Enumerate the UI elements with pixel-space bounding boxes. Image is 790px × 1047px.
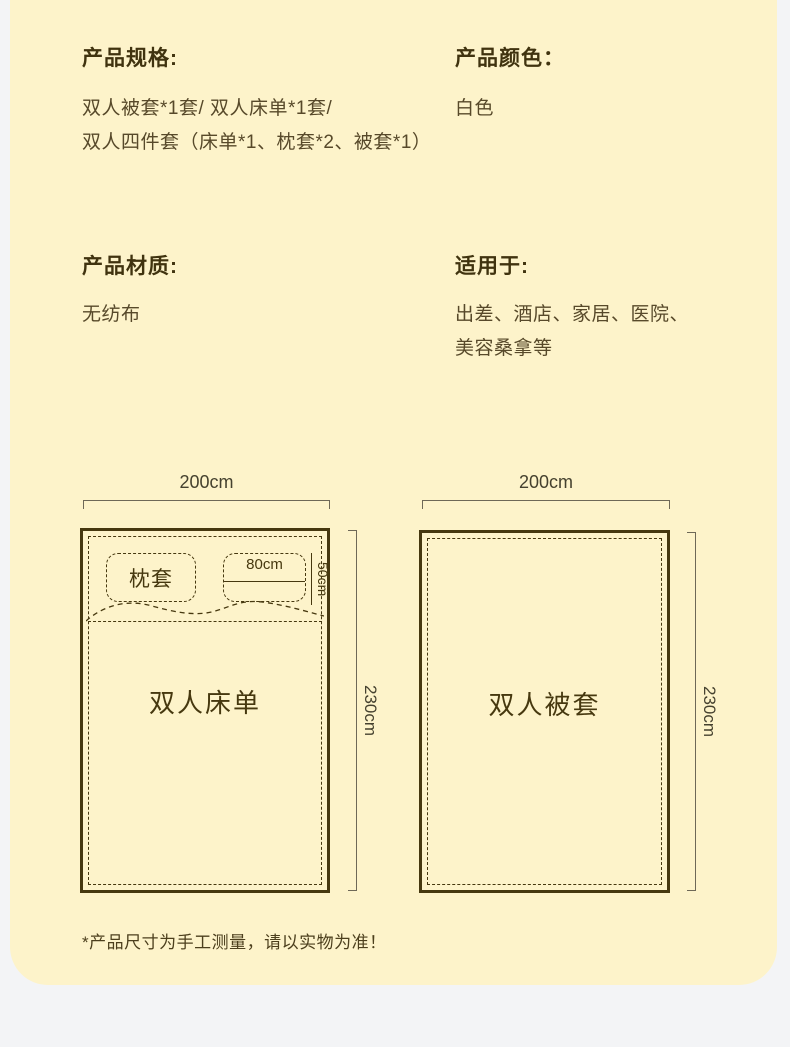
sheet-height-dimension-label: 230cm <box>360 530 380 891</box>
duvet-height-dimension-bracket <box>687 532 696 891</box>
duvet-width-dimension-label: 200cm <box>422 472 670 493</box>
usage-line-2: 美容桑拿等 <box>455 332 689 366</box>
material-title: 产品材质: <box>82 250 178 280</box>
sheet-fold-straight-line <box>88 621 322 622</box>
spec-lines: 双人被套*1套/ 双人床单*1套/ 双人四件套（床单*1、枕套*2、被套*1） <box>82 92 431 160</box>
sheet-diagram: 枕套 80cm 50cm 双人床单 <box>80 528 330 893</box>
usage-lines: 出差、酒店、家居、医院、 美容桑拿等 <box>455 298 689 366</box>
usage-line-1: 出差、酒店、家居、医院、 <box>455 298 689 332</box>
measurement-disclaimer: *产品尺寸为手工测量，请以实物为准！ <box>82 928 387 953</box>
pillow-width-dimension-label: 80cm <box>224 556 305 573</box>
duvet-width-dimension-bracket <box>422 500 670 509</box>
duvet-height-dimension-label: 230cm <box>699 532 719 891</box>
spec-title: 产品规格: <box>82 42 178 72</box>
sheet-fold-wavy-line <box>86 595 324 627</box>
sheet-width-dimension-bracket <box>83 500 330 509</box>
pillow-width-dimension-line <box>224 581 305 582</box>
product-info-card: 产品规格: 双人被套*1套/ 双人床单*1套/ 双人四件套（床单*1、枕套*2、… <box>10 0 777 985</box>
usage-title: 适用于: <box>455 250 529 280</box>
pillow-label: 枕套 <box>107 554 195 601</box>
sheet-label: 双人床单 <box>83 683 327 720</box>
page-background: 产品规格: 双人被套*1套/ 双人床单*1套/ 双人四件套（床单*1、枕套*2、… <box>0 0 790 1047</box>
spec-line-2: 双人四件套（床单*1、枕套*2、被套*1） <box>82 126 431 160</box>
sheet-height-dimension-bracket <box>348 530 357 891</box>
duvet-label: 双人被套 <box>422 685 667 722</box>
sheet-width-dimension-label: 200cm <box>83 472 330 493</box>
spec-line-1: 双人被套*1套/ 双人床单*1套/ <box>82 92 431 126</box>
color-title: 产品颜色： <box>455 42 565 72</box>
material-value: 无纺布 <box>82 298 141 332</box>
duvet-diagram: 双人被套 <box>419 530 670 893</box>
color-value: 白色 <box>455 92 494 126</box>
